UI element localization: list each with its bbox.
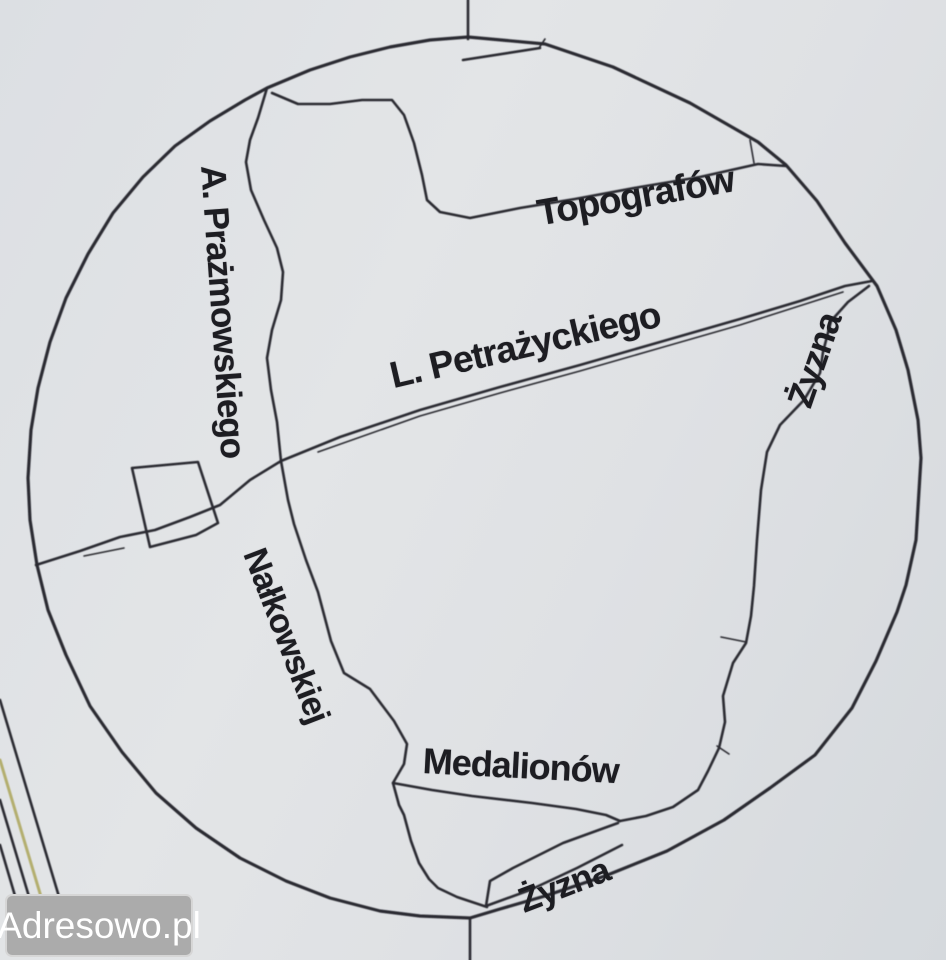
- road-prazmowskiego: [246, 88, 283, 461]
- map-boundary-circle: [28, 37, 921, 918]
- road-petrazyckiego-west: [36, 461, 281, 565]
- plot-rectangle: [132, 462, 218, 547]
- road-top-inner-stub: [463, 48, 540, 60]
- watermark-label: Adresowo.pl: [0, 905, 201, 947]
- watermark-badge: Adresowo.pl: [5, 894, 193, 957]
- street-sketch-drawing: [0, 0, 946, 960]
- road-petrazyckiego-west-double: [84, 548, 124, 556]
- map-canvas: Topografów L. Petrażyckiego A. Prażmowsk…: [0, 0, 946, 960]
- topografow-edge-connector: [750, 140, 754, 163]
- zyzna-east-tick-1: [721, 637, 746, 642]
